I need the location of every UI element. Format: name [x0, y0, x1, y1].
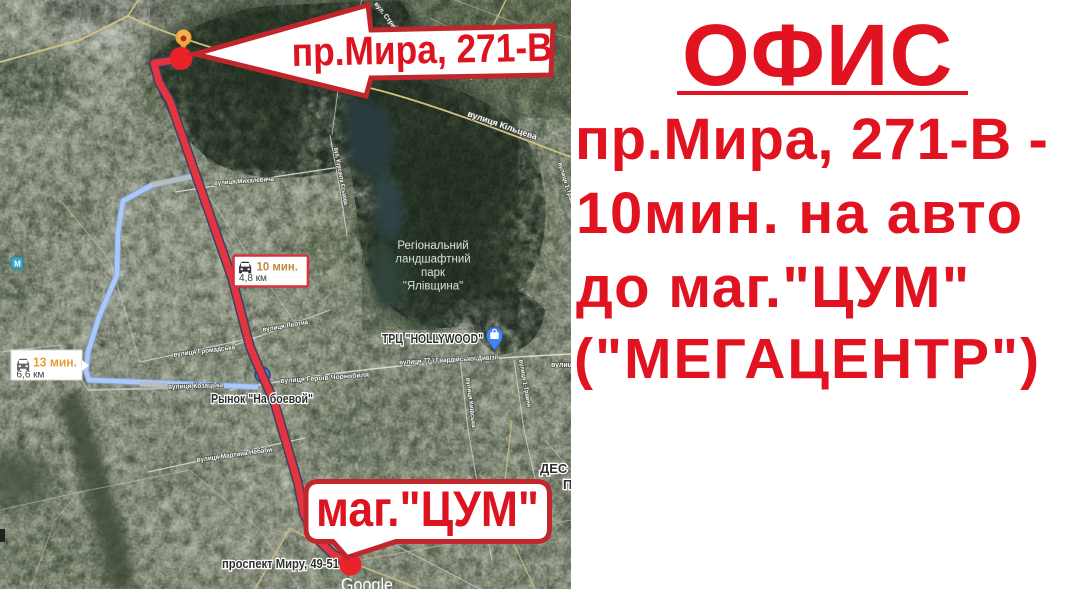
- svg-text:ДЕС: ДЕС: [540, 461, 568, 476]
- svg-text:парк: парк: [421, 267, 446, 279]
- svg-text:ландшафтний: ландшафтний: [395, 254, 470, 266]
- svg-text:Регіональний: Регіональний: [397, 240, 468, 252]
- svg-text:пр.Мира, 271-В: пр.Мира, 271-В: [291, 26, 553, 75]
- svg-text:4,8 км: 4,8 км: [239, 273, 267, 284]
- svg-text:ТРЦ "HOLLYWOOD": ТРЦ "HOLLYWOOD": [382, 332, 483, 346]
- svg-text:Google: Google: [341, 574, 393, 589]
- svg-text:П: П: [563, 477, 571, 492]
- svg-text:проспект Миру, 49-51: проспект Миру, 49-51: [222, 556, 339, 571]
- svg-text:маг."ЦУМ": маг."ЦУМ": [316, 481, 539, 537]
- svg-text:M: M: [14, 260, 21, 269]
- svg-text:13 мин.: 13 мин.: [33, 356, 77, 370]
- svg-text:вулиц: вулиц: [551, 362, 571, 369]
- svg-text:6,6 км: 6,6 км: [17, 370, 45, 381]
- svg-text:Рынок "На боевой": Рынок "На боевой": [211, 391, 313, 406]
- svg-text:"Ялівщина": "Ялівщина": [403, 281, 463, 293]
- svg-text:10 мин.: 10 мин.: [257, 260, 299, 274]
